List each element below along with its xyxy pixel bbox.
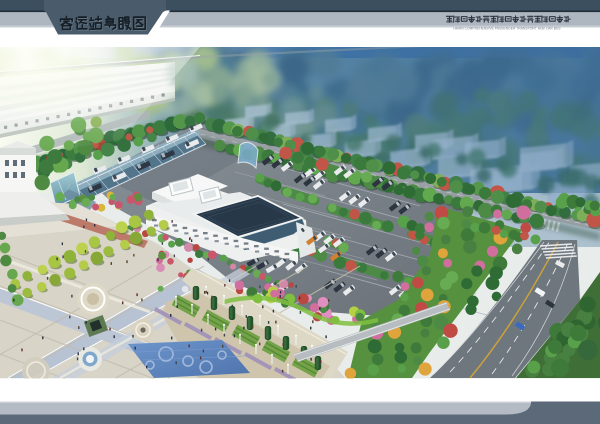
svg-text:HAIAN COMPREHENSIVE PASSENGER: HAIAN COMPREHENSIVE PASSENGER TRANSPORT … [453,27,560,31]
